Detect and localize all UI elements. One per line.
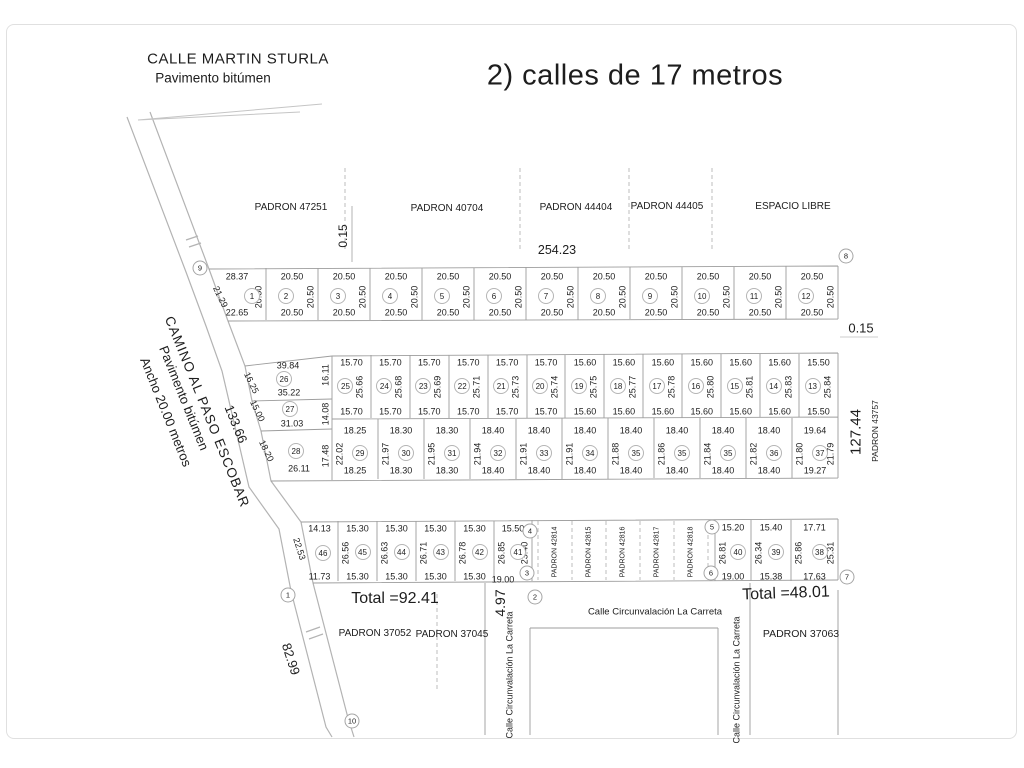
dim-label: 15.30 <box>424 573 447 582</box>
lot-number: 44 <box>394 544 410 560</box>
dim-label: 19.00 <box>722 573 745 582</box>
lot-number: 38 <box>812 544 828 560</box>
dim-label: 21.91 <box>520 443 529 466</box>
lot-number: 16 <box>688 378 704 394</box>
espacio-libre-label: ESPACIO LIBRE <box>755 202 830 212</box>
lot-number: 2 <box>278 288 294 304</box>
dim-label: 25.66 <box>356 376 365 399</box>
dim-label: 18.25 <box>344 467 367 476</box>
lot-number: 4 <box>382 288 398 304</box>
dim-label: 15.30 <box>385 525 408 534</box>
dim-label: 15.50 <box>807 359 830 368</box>
dim-label: 18.40 <box>712 467 735 476</box>
street-label-circunvalacion: Calle Circunvalación La Carreta <box>506 611 515 738</box>
dim-label: 20.50 <box>541 309 564 318</box>
lot-number: 37 <box>812 445 828 461</box>
dim-label: 19.64 <box>804 427 827 436</box>
lot-number: 13 <box>805 378 821 394</box>
dim-label: 20.50 <box>619 286 628 309</box>
dim-label: 25.69 <box>434 376 443 399</box>
dim-label: 25.78 <box>667 376 676 399</box>
dim-label: 20.50 <box>489 273 512 282</box>
dim-label: 15.60 <box>574 408 597 417</box>
dim-label: 21.82 <box>750 443 759 466</box>
dim-label: 20.50 <box>307 286 316 309</box>
dim-label: 15.70 <box>496 359 519 368</box>
dim-label: 15.60 <box>652 359 675 368</box>
dim-label: 15.30 <box>463 573 486 582</box>
dim-label: 20.50 <box>281 309 304 318</box>
dim-label: 20.50 <box>697 309 720 318</box>
padron-label: PADRON 43757 <box>871 400 880 462</box>
lot-number: 17 <box>649 378 665 394</box>
dim-label: 25.68 <box>395 376 404 399</box>
station-marker: 9 <box>193 261 208 276</box>
dim-label: 15.38 <box>760 573 783 582</box>
dim-label: 20.50 <box>645 309 668 318</box>
dim-label: 18.40 <box>758 427 781 436</box>
lot-number: 11 <box>746 288 762 304</box>
lot-number: 29 <box>352 445 368 461</box>
dim-label: 20.50 <box>489 309 512 318</box>
padron-label: PADRON 42817 <box>654 527 661 578</box>
station-marker: 8 <box>839 249 854 264</box>
padron-label: PADRON 47251 <box>255 203 328 213</box>
dim-label: 15.60 <box>768 408 791 417</box>
padron-label: PADRON 37063 <box>763 629 839 640</box>
dim-label: 18.25 <box>344 427 367 436</box>
total-label: Total =92.41 <box>351 591 439 607</box>
lot-number: 43 <box>433 544 449 560</box>
dim-label: 20.50 <box>697 273 720 282</box>
dim-label: 20.50 <box>567 286 576 309</box>
street-top-edges <box>138 104 322 120</box>
total-label: Total =48.01 <box>742 584 830 603</box>
dim-label: 20.50 <box>359 286 368 309</box>
padron-label: PADRON 42814 <box>552 527 559 578</box>
station-marker: 7 <box>840 570 855 585</box>
dim-label: 21.97 <box>382 443 391 466</box>
dim-label: 26.63 <box>381 542 390 565</box>
dim-label: 15.50 <box>807 408 830 417</box>
station-marker: 3 <box>520 566 535 581</box>
padron-label: PADRON 44405 <box>631 202 704 212</box>
lot-number: 40 <box>730 544 746 560</box>
dim-label: 20.50 <box>645 273 668 282</box>
lot-number: 32 <box>490 445 506 461</box>
dim-label: 18.40 <box>666 467 689 476</box>
dim-label: 21.88 <box>612 443 621 466</box>
station-marker: 5 <box>705 520 720 535</box>
street-label-circunvalacion: Calle Circunvalación La Carreta <box>733 616 742 743</box>
dim-label: 15.70 <box>418 359 441 368</box>
dim-label: 22.02 <box>336 443 345 466</box>
dim-label: 20.50 <box>749 273 772 282</box>
lot-number: 42 <box>472 544 488 560</box>
lot-number: 33 <box>536 445 552 461</box>
station-marker: 2 <box>528 590 543 605</box>
dim-label: 18.40 <box>620 467 643 476</box>
dim-label: 15.60 <box>691 359 714 368</box>
lot-number: 18 <box>610 378 626 394</box>
lot-number: 31 <box>444 445 460 461</box>
lot-number: 24 <box>376 378 392 394</box>
dim-label: 18.40 <box>574 427 597 436</box>
dim-label: 25.80 <box>706 376 715 399</box>
lot-number: 22 <box>454 378 470 394</box>
station-marker: 10 <box>345 714 360 729</box>
street-surface-label: Pavimento bitúmen <box>155 71 271 85</box>
lot-number: 7 <box>538 288 554 304</box>
dim-label: 15.70 <box>379 359 402 368</box>
dim-label: 21.86 <box>658 443 667 466</box>
dim-label: 254.23 <box>538 244 576 257</box>
dim-label: 15.30 <box>385 573 408 582</box>
dim-label: 18.40 <box>758 467 781 476</box>
dim-label: 25.86 <box>795 542 804 565</box>
dim-label: 28.37 <box>226 273 249 282</box>
dim-label: 18.40 <box>528 467 551 476</box>
dim-label: 20.50 <box>385 309 408 318</box>
dim-label: 20.50 <box>333 309 356 318</box>
dim-label: 26.81 <box>719 542 728 565</box>
dim-label: 26.78 <box>459 542 468 565</box>
lot-number: 46 <box>315 545 331 561</box>
dim-label: 25.83 <box>784 376 793 399</box>
lot-number: 8 <box>590 288 606 304</box>
dim-label: 15.70 <box>340 408 363 417</box>
lot-number: 36 <box>766 445 782 461</box>
lot-number: 9 <box>642 288 658 304</box>
dim-label: 25.31 <box>827 542 836 565</box>
dim-label: 20.50 <box>801 273 824 282</box>
dim-label: 21.91 <box>566 443 575 466</box>
dim-label: 17.63 <box>803 573 826 582</box>
lot-number: 35 <box>628 445 644 461</box>
dim-label: 15.70 <box>535 408 558 417</box>
dim-label: 14.13 <box>308 525 331 534</box>
dim-label: 18.30 <box>436 467 459 476</box>
dim-label: 21.80 <box>796 443 805 466</box>
dim-label: 15.30 <box>463 525 486 534</box>
dim-label: 20.50 <box>437 273 460 282</box>
dim-label: 0.15 <box>337 224 349 247</box>
dim-label: 15.60 <box>729 408 752 417</box>
lot-number: 1 <box>244 288 260 304</box>
dim-label: 19.00 <box>492 576 515 585</box>
dim-label: 15.60 <box>768 359 791 368</box>
dim-label: 20.50 <box>281 273 304 282</box>
dim-label: 15.60 <box>574 359 597 368</box>
lot-number: 5 <box>434 288 450 304</box>
lot-number: 21 <box>493 378 509 394</box>
station-marker: 4 <box>523 524 538 539</box>
dim-label: 11.73 <box>309 573 331 582</box>
dim-label: 20.50 <box>775 286 784 309</box>
dim-label: 18.40 <box>666 427 689 436</box>
lot-number: 41 <box>510 544 526 560</box>
dim-label: 26.11 <box>288 465 310 474</box>
dim-label: 16.11 <box>322 364 331 386</box>
padron-label: PADRON 37052 <box>339 629 412 639</box>
dim-label: 20.50 <box>333 273 356 282</box>
lot-number: 14 <box>766 378 782 394</box>
dim-label: 18.40 <box>528 427 551 436</box>
dim-label: 39.84 <box>277 362 300 371</box>
dim-label: 31.03 <box>281 420 304 429</box>
dim-label: 15.60 <box>729 359 752 368</box>
page-title: 2) calles de 17 metros <box>487 62 783 91</box>
dim-label: 15.30 <box>346 573 369 582</box>
dim-label: 20.50 <box>801 309 824 318</box>
dim-label: 20.50 <box>541 273 564 282</box>
dim-label: 15.70 <box>535 359 558 368</box>
lot-number: 39 <box>768 544 784 560</box>
lot-number: 30 <box>398 445 414 461</box>
dim-label: 25.81 <box>745 376 754 399</box>
lot-number: 6 <box>486 288 502 304</box>
dim-label: 17.71 <box>803 524 826 533</box>
padron-label: PADRON 40704 <box>411 204 484 214</box>
dim-label: 127.44 <box>849 409 864 455</box>
dim-label: 26.71 <box>420 542 429 565</box>
dim-label: 18.40 <box>482 467 505 476</box>
padron-label: PADRON 37045 <box>416 630 489 640</box>
dim-label: 18.30 <box>390 427 413 436</box>
dim-label: 18.30 <box>436 427 459 436</box>
dim-label: 26.56 <box>342 542 351 565</box>
dim-label: 20.50 <box>437 309 460 318</box>
dim-label: 15.70 <box>418 408 441 417</box>
lot-number: 15 <box>727 378 743 394</box>
dim-label: 26.34 <box>755 542 764 565</box>
lot-number: 45 <box>355 544 371 560</box>
padron-label: PADRON 42816 <box>620 527 627 578</box>
dim-label: 20.50 <box>593 273 616 282</box>
dim-label: 22.65 <box>226 309 249 318</box>
dim-label: 20.50 <box>463 286 472 309</box>
dim-label: 18.40 <box>574 467 597 476</box>
dim-label: 20.50 <box>723 286 732 309</box>
dim-label: 15.70 <box>379 408 402 417</box>
dim-label: 25.73 <box>512 376 521 399</box>
lot-number: 20 <box>532 378 548 394</box>
dim-label: 21.95 <box>428 443 437 466</box>
lot-number: 25 <box>337 378 353 394</box>
dim-label: 18.40 <box>482 427 505 436</box>
dim-label: 15.70 <box>496 408 519 417</box>
dim-label: 21.84 <box>704 443 713 466</box>
dim-label: 15.60 <box>613 408 636 417</box>
lot-number: 12 <box>798 288 814 304</box>
station-marker: 1 <box>281 588 296 603</box>
dim-label: 20.50 <box>385 273 408 282</box>
lot-number: 27 <box>282 401 298 417</box>
dim-label: 17.48 <box>322 445 331 468</box>
street-label-circunvalacion: Calle Circunvalación La Carreta <box>588 607 722 617</box>
lot-number: 34 <box>582 445 598 461</box>
lot-number: 19 <box>571 378 587 394</box>
lot-number: 26 <box>276 371 292 387</box>
lot-number: 28 <box>288 443 304 459</box>
dim-label: 18.40 <box>620 427 643 436</box>
lot-number: 23 <box>415 378 431 394</box>
dim-label: 15.30 <box>346 525 369 534</box>
dim-label: 25.71 <box>473 376 482 399</box>
dim-label: 25.74 <box>551 376 560 399</box>
station-marker: 6 <box>704 566 719 581</box>
padron-label: PADRON 42815 <box>586 527 593 578</box>
dim-label: 35.22 <box>278 389 301 398</box>
lot-number: 35 <box>674 445 690 461</box>
dim-label: 0.15 <box>848 322 873 335</box>
dim-label: 14.08 <box>322 403 331 426</box>
dim-label: 20.50 <box>749 309 772 318</box>
dim-label: 15.30 <box>424 525 447 534</box>
dim-label: 20.50 <box>411 286 420 309</box>
padron-label: PADRON 44404 <box>540 203 613 213</box>
dim-label: 26.85 <box>498 542 507 565</box>
lot-number: 3 <box>330 288 346 304</box>
cadastral-plan: 2) calles de 17 metrosCALLE MARTIN STURL… <box>0 0 1024 768</box>
dim-label: 18.40 <box>712 427 735 436</box>
dim-label: 15.70 <box>457 359 480 368</box>
dim-label: 15.70 <box>457 408 480 417</box>
dim-label: 25.75 <box>590 376 599 399</box>
dim-label: 15.70 <box>340 359 363 368</box>
dim-label: 25.84 <box>823 376 832 399</box>
dim-label: 25.77 <box>628 376 637 399</box>
dim-label: 15.60 <box>613 359 636 368</box>
dim-label: 15.40 <box>760 524 783 533</box>
dim-label: 15.50 <box>502 525 525 534</box>
dim-label: 15.60 <box>691 408 714 417</box>
dim-label: 15.20 <box>722 524 745 533</box>
padron-label: PADRON 42818 <box>688 527 695 578</box>
dim-label: 18.30 <box>390 467 413 476</box>
dim-label: 21.94 <box>474 443 483 466</box>
street-label-martin-sturla: CALLE MARTIN STURLA <box>147 52 329 67</box>
dim-label: 19.27 <box>804 467 827 476</box>
dim-label: 20.50 <box>671 286 680 309</box>
dim-label: 20.50 <box>515 286 524 309</box>
lot-number: 35 <box>720 445 736 461</box>
lot-number: 10 <box>694 288 710 304</box>
dim-label: 20.50 <box>593 309 616 318</box>
dim-label: 15.60 <box>652 408 675 417</box>
dim-label: 20.50 <box>827 286 836 309</box>
